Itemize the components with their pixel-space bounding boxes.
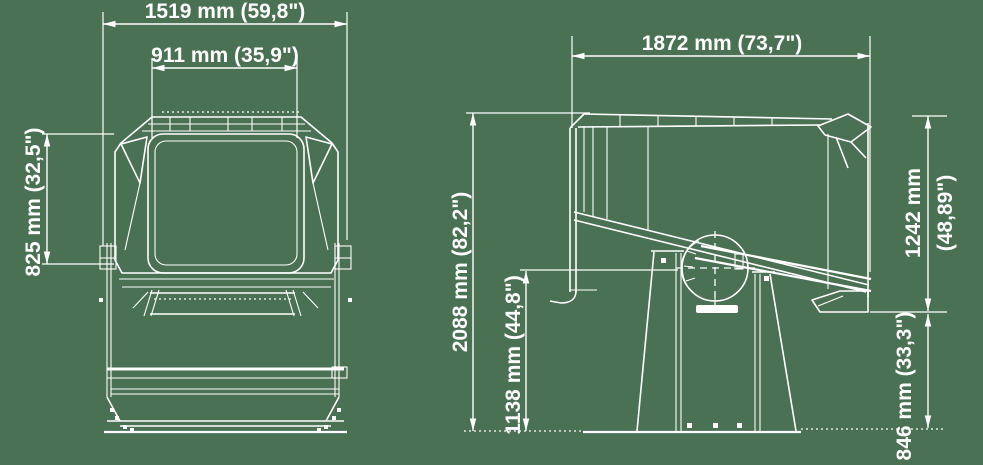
front-left-crease [125, 183, 140, 250]
front-top-band-lines [142, 124, 311, 131]
front-base-chamfers [107, 397, 339, 421]
dimension-label: 1519 mm (59,8") [145, 0, 306, 23]
extension-lines [572, 36, 870, 272]
dimension-label: 825 mm (32,5") [22, 128, 45, 277]
front-lower-band-lines [107, 378, 339, 394]
front-view [99, 112, 352, 432]
dimension-side-axis-height: 1138 mm (44,8") [502, 270, 678, 435]
front-bottom-band-lines [119, 279, 334, 287]
front-rail-end-clips [144, 290, 301, 316]
side-support-arm [695, 246, 871, 291]
dimension-side-underside-height: 846 mm (33,3") [893, 312, 928, 461]
side-pedestal-outline [637, 251, 796, 431]
side-front-hook-handle [550, 291, 576, 303]
dimension-label-mm: 1242 mm [902, 168, 925, 258]
side-rear-foot [812, 291, 868, 312]
front-base-plate [107, 421, 344, 426]
dimension-drawing: 1519 mm (59,8") 911 mm (35,9") 825 mm (3… [0, 0, 983, 465]
side-head-front-edges [570, 128, 576, 292]
front-lower-body-sides [107, 243, 339, 397]
dimension-label-inches: (48,89") [934, 175, 957, 252]
dimension-label: 911 mm (35,9") [151, 44, 299, 67]
side-head-top-edges [578, 114, 832, 127]
front-left-corner-brace [121, 137, 147, 183]
extension-lines [152, 58, 297, 138]
front-bottom-rail [150, 293, 295, 314]
dimension-side-head-height: 1242 mm (48,89") [870, 116, 957, 312]
dimension-front-overall-width: 1519 mm (59,8") [103, 0, 347, 246]
side-brand-label [696, 305, 738, 313]
side-view [464, 114, 943, 432]
side-rear-top-facets [818, 114, 871, 168]
dimension-label: 846 mm (33,3") [893, 312, 916, 461]
technical-drawing-canvas: 1519 mm (59,8") 911 mm (35,9") 825 mm (3… [0, 0, 983, 465]
front-base-bolts [110, 408, 341, 432]
front-right-corner-brace [306, 137, 332, 183]
dimension-label: 1138 mm (44,8") [502, 275, 525, 434]
side-head-panel-seams [593, 126, 648, 230]
front-right-crease [313, 183, 328, 250]
side-pivot-gear-ticks [684, 251, 696, 281]
front-window-inner-frame [155, 141, 297, 265]
dimension-label: 2088 mm (82,2") [449, 192, 472, 353]
front-window-outer-frame [148, 134, 304, 273]
side-head-belly-lines [574, 212, 869, 292]
dimension-label: 1872 mm (73,7") [642, 32, 803, 55]
